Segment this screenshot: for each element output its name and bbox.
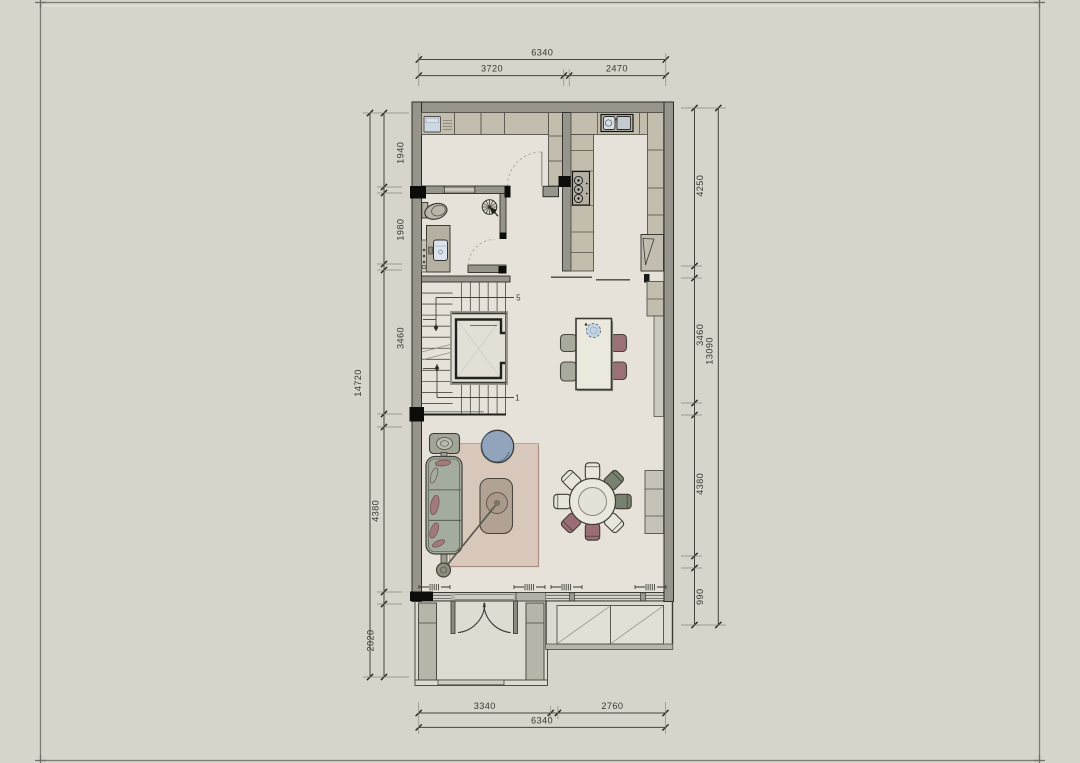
svg-text:5: 5 (516, 294, 521, 303)
svg-text:14720: 14720 (353, 369, 363, 397)
svg-text:990: 990 (695, 588, 705, 605)
svg-text:6340: 6340 (531, 48, 553, 58)
svg-text:3460: 3460 (396, 327, 406, 349)
svg-text:3720: 3720 (481, 64, 503, 74)
svg-text:13090: 13090 (705, 337, 715, 365)
svg-text:6340: 6340 (531, 716, 553, 726)
svg-text:1980: 1980 (396, 219, 406, 241)
svg-text:2470: 2470 (606, 64, 628, 74)
svg-text:4250: 4250 (695, 175, 705, 197)
svg-text:1940: 1940 (396, 142, 406, 164)
svg-text:3340: 3340 (474, 701, 496, 711)
svg-text:2760: 2760 (601, 701, 623, 711)
svg-text:4380: 4380 (370, 500, 380, 522)
svg-text:1: 1 (515, 394, 520, 403)
svg-text:3460: 3460 (695, 324, 705, 346)
svg-text:4380: 4380 (695, 473, 705, 495)
svg-text:2020: 2020 (366, 629, 376, 651)
